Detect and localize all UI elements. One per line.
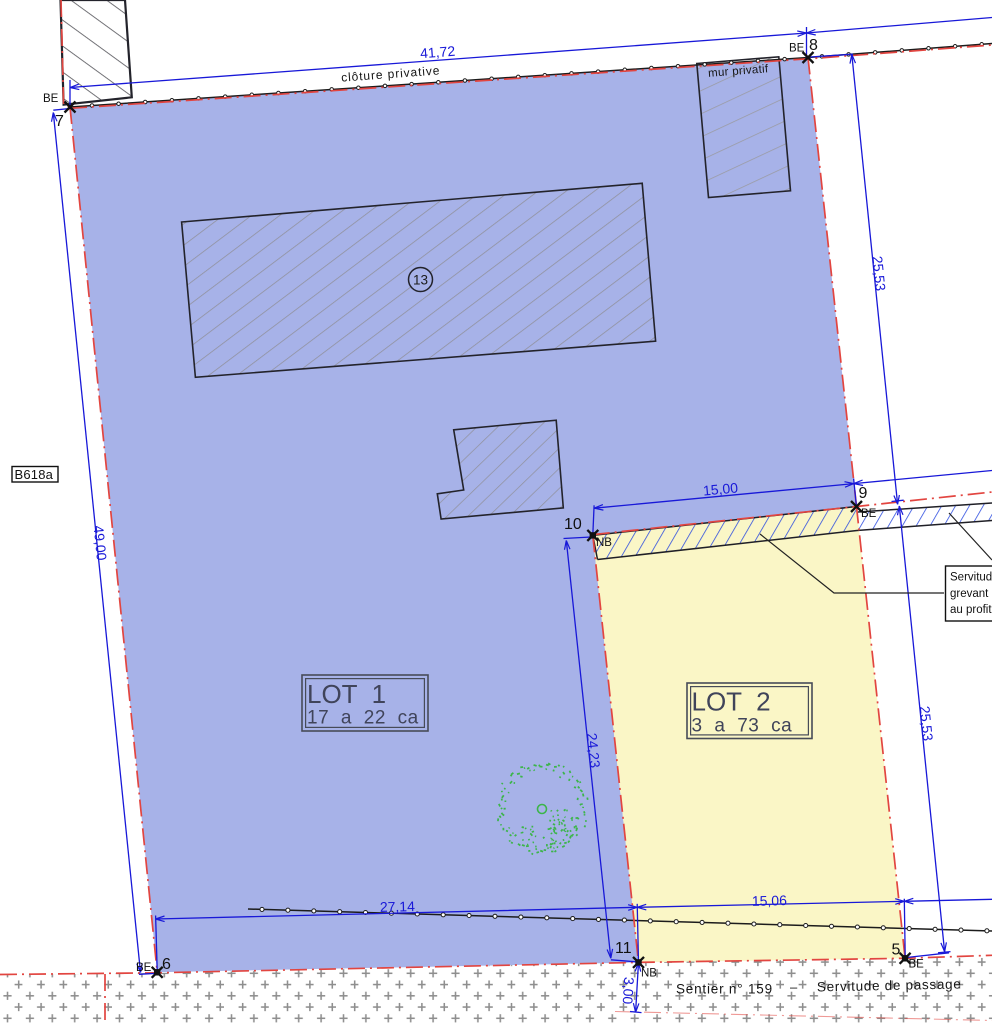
svg-text:5: 5 [892,942,901,959]
svg-text:LOT2: LOT2 [692,687,771,717]
svg-text:3,00: 3,00 [620,977,638,1005]
svg-text:Servitude: Servitude [950,572,992,584]
svg-text:15,00: 15,00 [702,479,739,498]
svg-text:27,14: 27,14 [380,898,416,915]
svg-text:7: 7 [55,113,64,130]
svg-text:8: 8 [809,37,818,54]
svg-text:Servitude de passage: Servitude de passage [817,976,962,994]
svg-text:NB: NB [596,537,612,549]
svg-text:41,72: 41,72 [420,43,456,62]
svg-text:13: 13 [413,272,428,287]
svg-text:–: – [790,980,798,995]
svg-text:6: 6 [162,956,171,973]
svg-text:NB: NB [641,968,657,980]
svg-text:BE: BE [861,508,877,520]
svg-text:BE: BE [909,959,925,971]
svg-text:au profit d: au profit d [950,604,992,616]
svg-text:BE: BE [789,43,805,55]
svg-text:11: 11 [615,940,632,957]
svg-text:Sentier n° 159: Sentier n° 159 [676,982,773,997]
svg-text:15,06: 15,06 [752,892,788,909]
svg-text:B618a: B618a [15,467,54,482]
svg-text:17 a 22 ca: 17 a 22 ca [307,708,419,729]
svg-text:grevant le: grevant le [950,588,992,600]
svg-text:9: 9 [859,485,868,502]
svg-text:BE: BE [43,93,59,105]
svg-text:BE: BE [136,962,152,974]
svg-text:LOT1: LOT1 [307,679,386,709]
svg-text:10: 10 [564,516,582,533]
svg-text:3 a 73 ca: 3 a 73 ca [692,716,793,737]
